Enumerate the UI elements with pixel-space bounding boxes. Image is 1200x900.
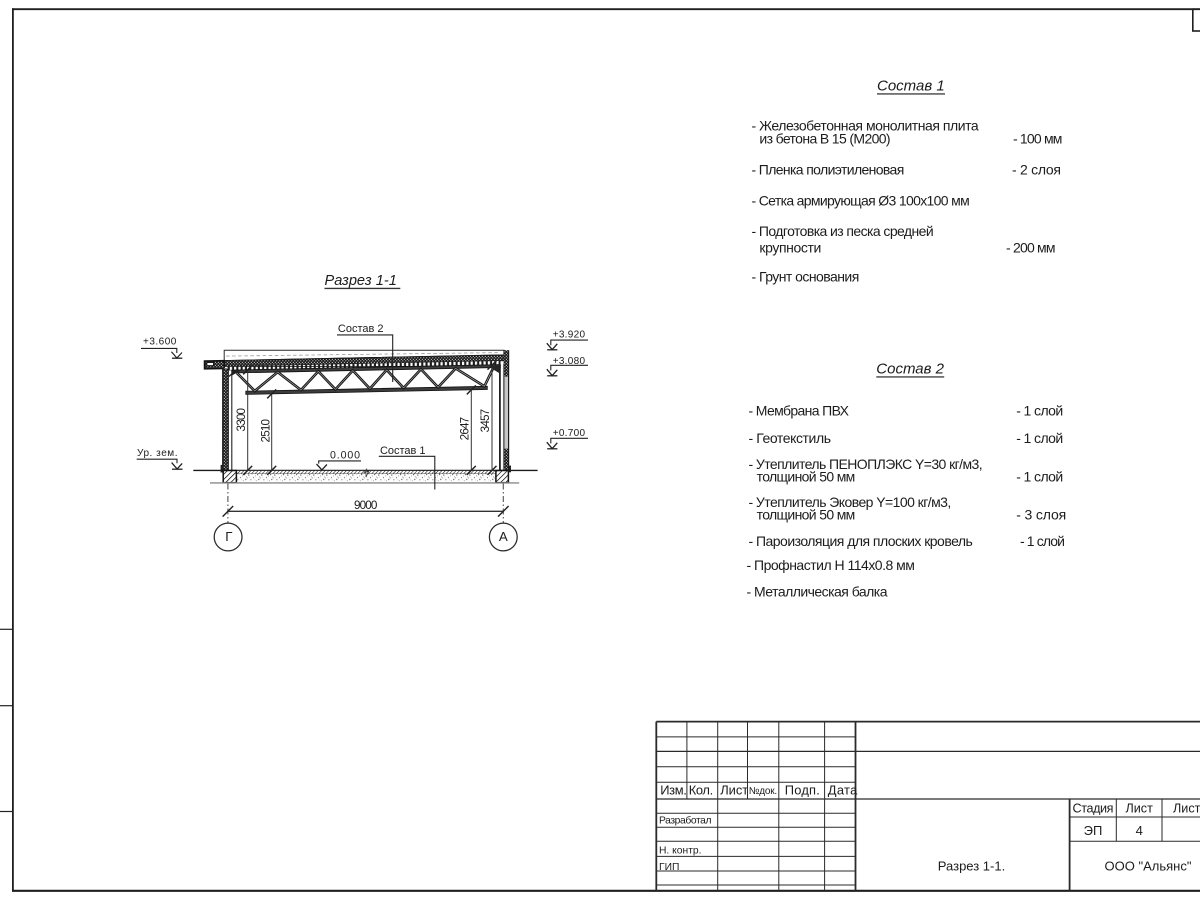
svg-text:- 3 слоя: - 3 слоя [1016, 506, 1066, 522]
svg-text:Дата: Дата [828, 782, 858, 797]
svg-text:- Пароизоляция для плоских кро: - Пароизоляция для плоских кровель [749, 533, 973, 549]
svg-text:толщиной 50 мм: толщиной 50 мм [757, 506, 856, 522]
svg-text:Н. контр.: Н. контр. [659, 846, 702, 857]
svg-text:2510: 2510 [259, 418, 272, 442]
svg-text:Кол.: Кол. [689, 782, 714, 797]
svg-text:Листов: Листов [1173, 801, 1200, 815]
svg-text:Лист: Лист [720, 782, 748, 797]
svg-text:- Сетка армирующая Ø3 100х100: - Сетка армирующая Ø3 100х100 мм [752, 193, 970, 209]
svg-text:Стадия: Стадия [1073, 801, 1114, 815]
svg-text:толщиной 50 мм: толщиной 50 мм [757, 468, 856, 484]
svg-text:0.000: 0.000 [330, 449, 360, 461]
svg-text:- Подготовка из песка средней: - Подготовка из песка средней [752, 223, 934, 239]
svg-text:Состав 1: Состав 1 [877, 78, 945, 95]
svg-text:+0.700: +0.700 [553, 428, 586, 439]
svg-text:Разработал: Разработал [659, 815, 712, 827]
svg-text:- 1 слой: - 1 слой [1016, 403, 1063, 419]
svg-text:Г: Г [225, 529, 232, 544]
svg-text:Разрез 1-1.: Разрез 1-1. [938, 858, 1005, 873]
svg-text:Состав 2: Состав 2 [338, 323, 384, 335]
svg-text:+3.600: +3.600 [143, 337, 177, 348]
svg-text:3300: 3300 [235, 407, 248, 431]
svg-text:ООО "Альянс": ООО "Альянс" [1105, 858, 1192, 873]
svg-text:- Мембрана ПВХ: - Мембрана ПВХ [749, 403, 850, 419]
svg-text:- 200 мм: - 200 мм [1006, 240, 1056, 256]
svg-text:- 1 слой: - 1 слой [1016, 468, 1063, 484]
svg-text:Лист: Лист [1126, 801, 1154, 815]
svg-text:- Геотекстиль: - Геотекстиль [749, 430, 832, 446]
svg-text:9000: 9000 [354, 499, 378, 512]
svg-text:- 2 слоя: - 2 слоя [1012, 162, 1061, 178]
svg-text:3457: 3457 [479, 409, 492, 433]
svg-text:ЭП: ЭП [1084, 823, 1103, 838]
svg-text:- 100 мм: - 100 мм [1013, 130, 1062, 146]
svg-text:- 1 слой: - 1 слой [1016, 430, 1063, 446]
svg-text:крупности: крупности [759, 240, 821, 256]
svg-text:- Профнастил Н 114х0.8 мм: - Профнастил Н 114х0.8 мм [747, 557, 915, 573]
svg-text:Разрез 1-1: Разрез 1-1 [325, 273, 397, 289]
svg-text:- Пленка полиэтиленовая: - Пленка полиэтиленовая [752, 162, 905, 178]
svg-text:№док.: №док. [749, 786, 778, 797]
svg-text:Ур. зем.: Ур. зем. [137, 448, 178, 459]
svg-text:- 1 слой: - 1 слой [1020, 533, 1065, 549]
svg-text:2647: 2647 [459, 417, 472, 441]
svg-text:ГИП: ГИП [659, 862, 679, 873]
svg-text:Состав 2: Состав 2 [876, 361, 944, 378]
svg-text:4: 4 [1136, 823, 1143, 838]
svg-text:Состав 1: Состав 1 [380, 445, 426, 457]
svg-text:Изм.: Изм. [660, 782, 687, 797]
svg-text:- Грунт основания: - Грунт основания [752, 268, 860, 284]
svg-text:+3.920: +3.920 [553, 330, 586, 341]
svg-text:Подп.: Подп. [785, 782, 820, 797]
svg-text:из бетона В 15 (М200): из бетона В 15 (М200) [759, 130, 890, 146]
svg-text:А: А [499, 529, 508, 544]
svg-text:- Металлическая балка: - Металлическая балка [747, 584, 888, 600]
